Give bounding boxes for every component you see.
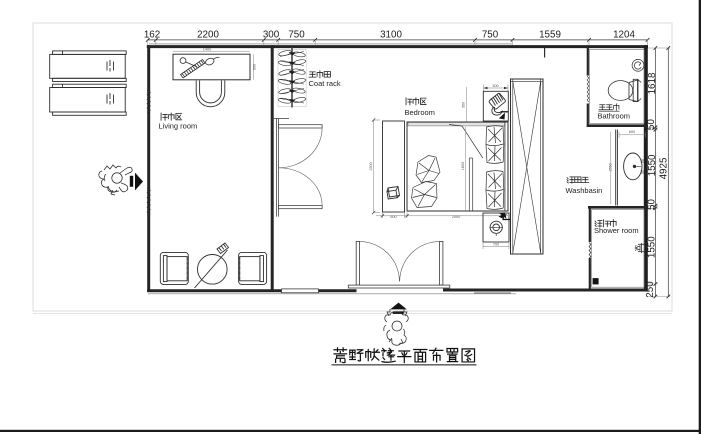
svg-text:Bedroom: Bedroom [405, 108, 435, 117]
svg-text:2000: 2000 [452, 215, 460, 219]
svg-text:1800: 1800 [461, 162, 465, 170]
svg-text:1400: 1400 [203, 47, 211, 51]
svg-text:Washbasin: Washbasin [566, 186, 603, 195]
svg-text:Shower room: Shower room [594, 226, 639, 235]
svg-text:162: 162 [144, 29, 160, 40]
svg-text:1618: 1618 [647, 72, 658, 94]
svg-text:1204: 1204 [613, 29, 635, 40]
svg-text:4925: 4925 [659, 157, 670, 179]
svg-text:1559: 1559 [539, 29, 561, 40]
svg-text:750: 750 [482, 29, 499, 40]
svg-text:1550: 1550 [647, 154, 658, 176]
svg-text:Coat rack: Coat rack [309, 79, 341, 88]
svg-text:3100: 3100 [380, 29, 402, 40]
svg-text:50: 50 [647, 199, 658, 210]
svg-text:250: 250 [645, 281, 656, 298]
svg-text:2200: 2200 [197, 29, 219, 40]
svg-text:600: 600 [390, 215, 396, 219]
svg-text:50: 50 [646, 119, 657, 130]
svg-text:Living room: Living room [159, 122, 198, 131]
svg-text:300: 300 [263, 29, 280, 40]
svg-text:350: 350 [462, 102, 466, 108]
svg-text:575: 575 [635, 245, 639, 251]
svg-text:Bathroom: Bathroom [598, 111, 631, 120]
svg-text:1500: 1500 [369, 162, 373, 170]
svg-text:1550: 1550 [608, 163, 612, 171]
svg-text:1550: 1550 [647, 236, 658, 258]
svg-text:700: 700 [493, 242, 499, 246]
svg-text:750: 750 [288, 29, 305, 40]
svg-text:600: 600 [252, 64, 256, 70]
svg-text:600: 600 [629, 130, 635, 134]
svg-text:300: 300 [492, 84, 498, 88]
